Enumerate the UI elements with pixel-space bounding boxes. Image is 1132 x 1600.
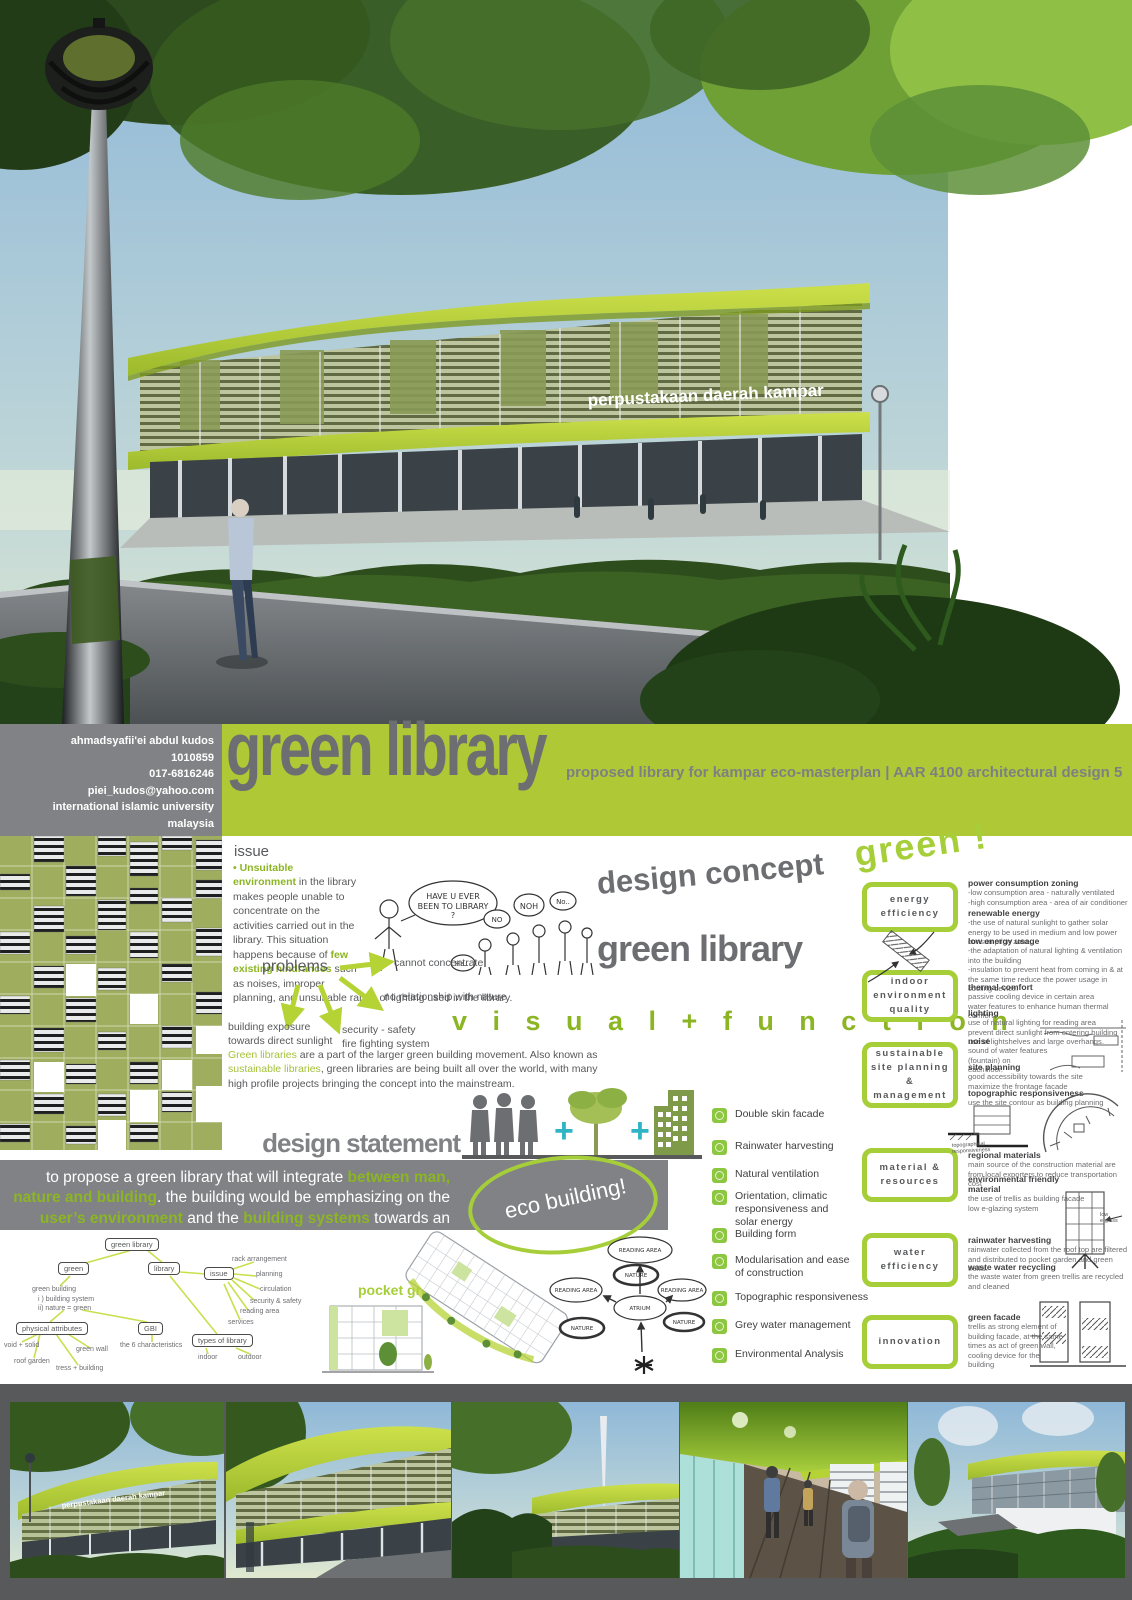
category-label: material & resources bbox=[880, 1161, 941, 1190]
atrium-bubble-sketch: READING AREA NATURE READING AREA READING… bbox=[548, 1228, 710, 1380]
checklist-item: Rainwater harvesting bbox=[712, 1140, 834, 1155]
detail-body: the waste water from green trellis are r… bbox=[968, 1272, 1130, 1291]
checklist-item: Topographic responsiveness bbox=[712, 1291, 868, 1306]
category-water-efficiency: water efficiency bbox=[862, 1233, 958, 1287]
bubble-nature-right: NATURE bbox=[673, 1320, 696, 1326]
bubble-no: NO bbox=[492, 916, 503, 924]
mindmap-label-note: i ) building system ii) nature = green bbox=[38, 1296, 94, 1314]
mindmap-label-circulation: circulation bbox=[260, 1286, 292, 1295]
eco-building-text: eco building! bbox=[485, 1169, 647, 1228]
poster-subtitle: proposed library for kampar eco-masterpl… bbox=[566, 764, 1122, 781]
issue-heading: issue bbox=[234, 843, 269, 860]
mindmap-label-planning: planning bbox=[256, 1271, 282, 1280]
mindmap-label-indoor: indoor bbox=[198, 1354, 217, 1363]
noise-sketch bbox=[1036, 1016, 1130, 1078]
poster-title: green library bbox=[226, 712, 545, 787]
checklist-label: Rainwater harvesting bbox=[735, 1140, 834, 1153]
people-silhouettes bbox=[470, 1093, 538, 1156]
green-facade-sketch bbox=[1026, 1296, 1130, 1374]
mindmap: green library green library issue green … bbox=[2, 1230, 302, 1382]
checklist-label: Orientation, climatic responsiveness and… bbox=[735, 1190, 828, 1229]
mindmap-label-reading: reading area bbox=[240, 1308, 279, 1317]
checklist-icon bbox=[712, 1190, 727, 1205]
detail-title: thermal comfort bbox=[968, 982, 1130, 992]
thumbnail-rear-view bbox=[908, 1402, 1125, 1578]
checklist-icon bbox=[712, 1291, 727, 1306]
mindmap-label-tress-building: tress + building bbox=[56, 1365, 103, 1374]
category-energy-efficiency: energy efficiency bbox=[862, 882, 958, 932]
curved-plan-sketch bbox=[1030, 1090, 1130, 1160]
problem-item: cannot concentrate bbox=[394, 956, 483, 970]
checklist-item: Natural ventilation bbox=[712, 1168, 819, 1183]
stmt-txt: to propose a green library that will int… bbox=[46, 1169, 348, 1186]
bubble-reading-right: READING AREA bbox=[661, 1288, 704, 1294]
category-label: innovation bbox=[878, 1335, 941, 1349]
sun-asterisk bbox=[635, 1356, 653, 1374]
design-concept-title: design concept bbox=[595, 846, 825, 902]
mindmap-node-root: green library bbox=[105, 1238, 159, 1251]
detail-title: power consumption zoning bbox=[968, 878, 1130, 888]
mindmap-label-six: the 6 characteristics bbox=[120, 1342, 182, 1351]
mindmap-node-library: library bbox=[148, 1262, 180, 1275]
checklist-icon bbox=[712, 1228, 727, 1243]
stmt-txt: and the bbox=[183, 1210, 243, 1227]
design-statement-heading: design statement bbox=[230, 1128, 460, 1159]
category-label: sustainable site planning & management bbox=[867, 1047, 953, 1104]
gl-hl1: Green libraries bbox=[228, 1049, 297, 1061]
mindmap-label-services: services bbox=[228, 1319, 254, 1328]
checklist-item: Building form bbox=[712, 1228, 796, 1243]
checklist-label: Building form bbox=[735, 1228, 796, 1241]
thumbnail-front-view: perpustakaan daerah kampar bbox=[10, 1402, 224, 1578]
mindmap-node-physical-attributes: physical attributes bbox=[16, 1322, 88, 1335]
author-university: international islamic university malaysi… bbox=[6, 799, 214, 832]
stmt-hl3: building systems bbox=[243, 1210, 370, 1227]
checklist-item: Environmental Analysis bbox=[712, 1348, 844, 1363]
plus-sign: + bbox=[630, 1112, 650, 1150]
checklist-icon bbox=[712, 1254, 727, 1269]
category-label: water efficiency bbox=[867, 1246, 953, 1275]
author-id: 1010859 bbox=[6, 750, 214, 767]
bubble-nature-left: NATURE bbox=[571, 1326, 594, 1332]
thumbnail-corner-view bbox=[226, 1402, 451, 1578]
detail-body: -low consumption area - naturally ventil… bbox=[968, 888, 1130, 907]
hero-rendering: perpustakaan daerah kampar bbox=[0, 0, 1132, 724]
detail-power-consumption-zoning: power consumption zoning-low consumption… bbox=[968, 878, 1130, 907]
checklist-item: Modularisation and ease of construction bbox=[712, 1254, 849, 1280]
mindmap-node-issue: issue bbox=[204, 1267, 234, 1280]
bubble-text: BEEN TO LIBRARY bbox=[418, 902, 489, 911]
low-e-glazing-sketch bbox=[1038, 1186, 1130, 1270]
author-phone: 017-6816246 bbox=[6, 766, 214, 783]
bubble-nature-top: NATURE bbox=[625, 1273, 648, 1279]
mindmap-node-types: types of library bbox=[192, 1334, 253, 1347]
author-info: ahmadsyafii'ei abdul kudos 1010859 017-6… bbox=[6, 733, 214, 832]
mindmap-label-void-solid: void + solid bbox=[4, 1342, 39, 1351]
mindmap-label-green-wall: green wall bbox=[76, 1346, 108, 1355]
bubble-no: No.. bbox=[556, 898, 570, 906]
checklist-label: Double skin facade bbox=[735, 1108, 824, 1121]
mindmap-node-gbi: GBI bbox=[138, 1322, 163, 1335]
bubble-text: ? bbox=[451, 911, 455, 920]
stmt-txt: . the building would be emphasizing on t… bbox=[157, 1189, 450, 1206]
checklist-label: Grey water management bbox=[735, 1319, 851, 1332]
mindmap-label-rack: rack arrangement bbox=[232, 1256, 287, 1265]
checklist-icon bbox=[712, 1319, 727, 1334]
bubble-reading-left: READING AREA bbox=[555, 1288, 598, 1294]
checklist-item: Double skin facade bbox=[712, 1108, 824, 1123]
thumbnail-interior-view bbox=[680, 1402, 907, 1578]
checklist-icon bbox=[712, 1140, 727, 1155]
bubble-text: HAVE U EVER bbox=[426, 892, 480, 901]
mindmap-label-green-building: green building bbox=[32, 1286, 76, 1295]
checklist-item: Orientation, climatic responsiveness and… bbox=[712, 1190, 828, 1229]
plus-sign: + bbox=[554, 1112, 574, 1150]
mindmap-label-security: security & safety bbox=[250, 1298, 301, 1307]
category-material-resources: material & resources bbox=[862, 1148, 958, 1202]
bubble-no: NOH bbox=[520, 902, 538, 911]
topo-note: topographical responsiveness bbox=[952, 1141, 991, 1155]
mindmap-label-outdoor: outdoor bbox=[238, 1354, 262, 1363]
category-innovation: innovation bbox=[862, 1315, 958, 1369]
man-nature-building-graphic: + + bbox=[462, 1084, 702, 1160]
issue-hl1: • Unsuitable environment bbox=[233, 862, 296, 888]
author-email: piei_kudos@yahoo.com bbox=[6, 783, 214, 800]
author-name: ahmadsyafii'ei abdul kudos bbox=[6, 733, 214, 750]
checklist-icon bbox=[712, 1168, 727, 1183]
checklist-icon bbox=[712, 1108, 727, 1123]
problem-item: no relationship with nature bbox=[384, 990, 507, 1004]
gl-txt: are a part of the larger green building … bbox=[297, 1049, 598, 1061]
checklist-item: Grey water management bbox=[712, 1319, 851, 1334]
checklist-label: Environmental Analysis bbox=[735, 1348, 844, 1361]
problem-item: building exposure towards direct sunligh… bbox=[228, 1020, 332, 1049]
tree-graphic bbox=[568, 1088, 627, 1156]
checklist-label: Topographic responsiveness bbox=[735, 1291, 868, 1304]
detail-title: renewable energy bbox=[968, 908, 1130, 918]
bubble-reading-top: READING AREA bbox=[619, 1248, 662, 1254]
facade-pattern bbox=[0, 836, 222, 1150]
energy-sketch bbox=[860, 926, 948, 988]
green-library-title: green library bbox=[597, 928, 802, 970]
checklist-label: Natural ventilation bbox=[735, 1168, 819, 1181]
low-e-note: low e-glass bbox=[1100, 1212, 1118, 1224]
mindmap-node-green: green bbox=[58, 1262, 89, 1275]
mindmap-label-roof-garden: roof garden bbox=[14, 1358, 50, 1367]
building-graphic bbox=[654, 1090, 694, 1156]
detail-title: low energy usage bbox=[968, 936, 1130, 946]
thumbnail-spire-view bbox=[452, 1402, 679, 1578]
gl-hl2: sustainable libraries bbox=[228, 1063, 321, 1075]
checklist-icon bbox=[712, 1348, 727, 1363]
stmt-hl2: user’s environment bbox=[40, 1210, 183, 1227]
category-label: energy efficiency bbox=[867, 893, 953, 922]
bubble-atrium: ATRIUM bbox=[629, 1306, 650, 1312]
checklist-label: Modularisation and ease of construction bbox=[735, 1254, 849, 1280]
